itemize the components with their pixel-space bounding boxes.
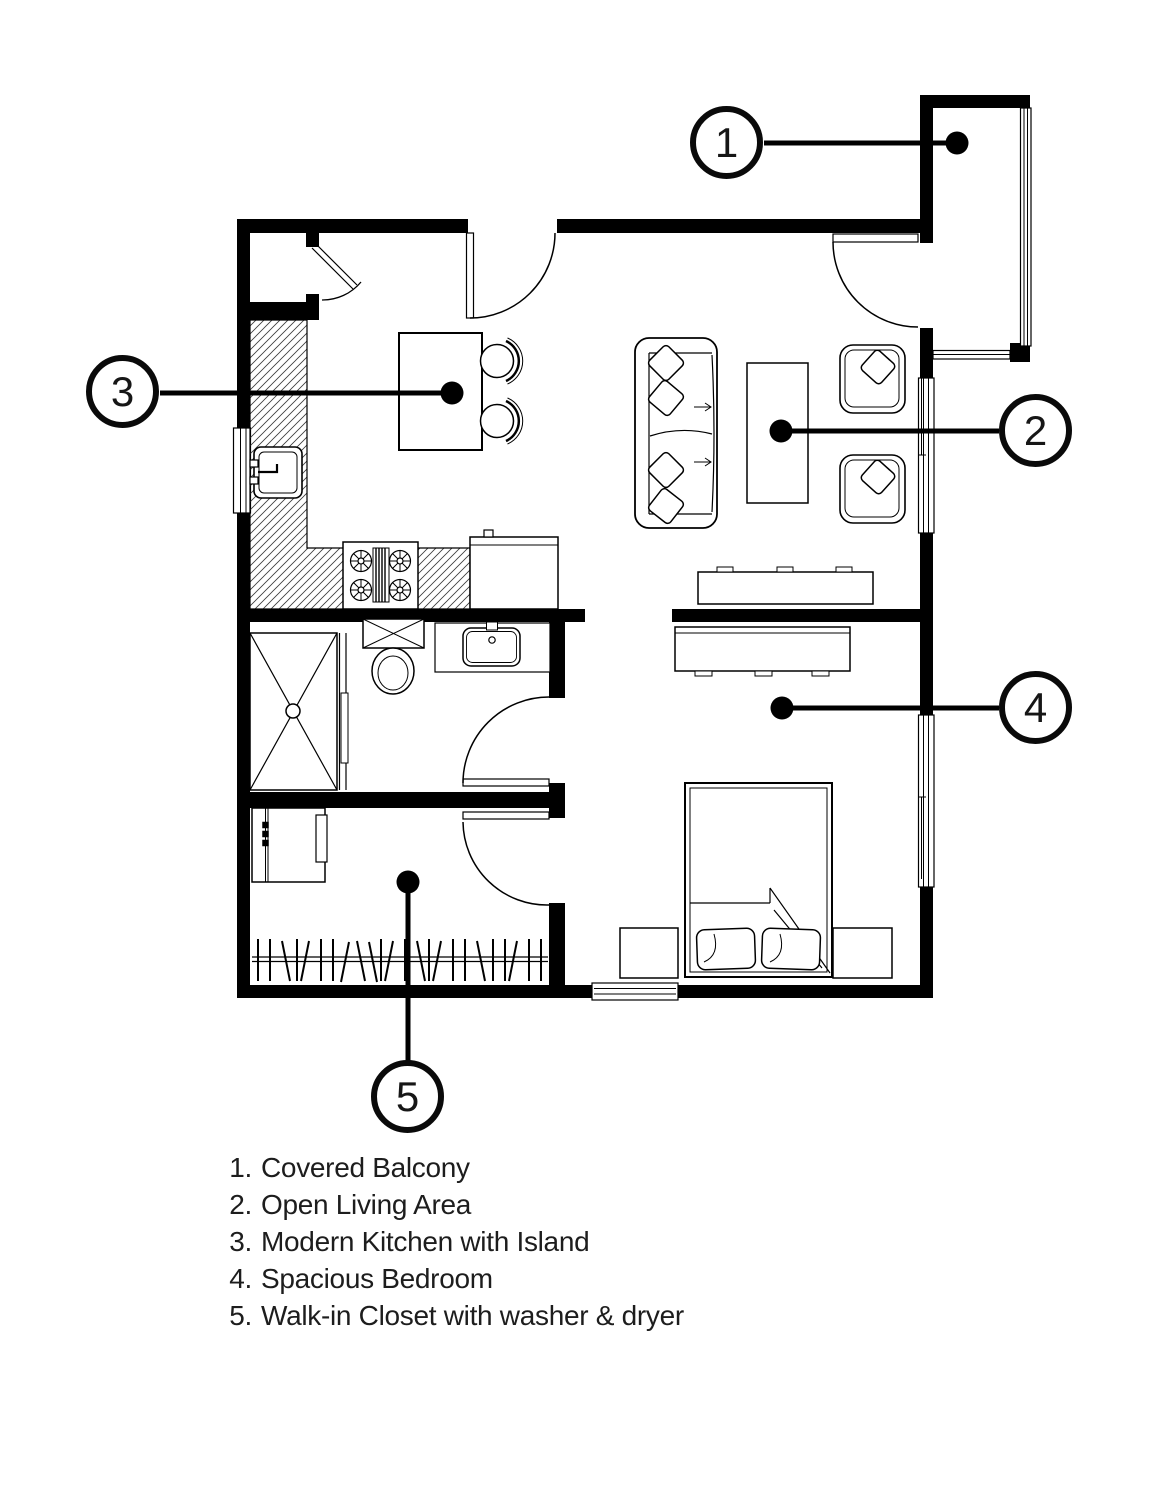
kitchen-window: [234, 428, 251, 513]
entry-door: [467, 233, 556, 318]
legend-item-label: Walk-in Closet with washer & dryer: [261, 1300, 684, 1332]
callout-number: 5: [396, 1076, 419, 1118]
living-room: [635, 338, 905, 604]
callout-bubble-4: 4: [999, 671, 1072, 744]
bathroom-door: [463, 697, 549, 786]
callout-bubble-3: 3: [86, 355, 159, 428]
closet-door: [463, 812, 549, 905]
bedroom-bottom-window: [592, 983, 678, 1000]
balcony-glass-right: [1021, 108, 1032, 346]
bedroom-divider-seg1: [549, 622, 565, 698]
dresser-icon: [675, 627, 850, 676]
top-wall-left: [237, 219, 468, 233]
living-bedroom-wall: [672, 609, 920, 622]
legend-item-label: Spacious Bedroom: [261, 1263, 493, 1295]
right-wall-seg3: [920, 887, 933, 998]
sofa-icon: [635, 338, 717, 528]
legend-item: 4. Spacious Bedroom: [216, 1260, 684, 1297]
legend-item-label: Covered Balcony: [261, 1152, 470, 1184]
stove-icon: [343, 542, 418, 609]
kitchen: [250, 320, 558, 609]
legend-item-number: 5.: [216, 1300, 252, 1332]
entry-closet-stub-bottom: [306, 294, 319, 320]
legend-item-number: 4.: [216, 1263, 252, 1295]
closet-rail-icon: [252, 939, 548, 982]
left-wall-lower: [237, 513, 250, 998]
toilet-icon: [363, 619, 424, 694]
callout-leader-1: [764, 132, 969, 155]
bed-icon: [685, 783, 832, 977]
callout-number: 1: [715, 122, 738, 164]
bathroom-vanity-icon: [435, 622, 550, 672]
callout-bubble-5: 5: [371, 1060, 444, 1133]
callout-bubble-2: 2: [999, 394, 1072, 467]
kitchen-sink-icon: [250, 447, 302, 498]
legend-item-number: 3.: [216, 1226, 252, 1258]
balcony-glass-bottom: [933, 351, 1010, 360]
right-wall-seg2: [920, 533, 933, 715]
callout-bubble-1: 1: [690, 106, 763, 179]
refrigerator-icon: [470, 530, 558, 609]
right-wall-seg1: [920, 328, 933, 378]
callout-number: 4: [1024, 687, 1047, 729]
bathroom: [250, 619, 550, 790]
bedroom: [620, 627, 892, 978]
bathroom-closet-wall: [237, 792, 565, 808]
bedroom-divider-seg3: [549, 903, 565, 985]
walk-in-closet: [252, 808, 548, 982]
tv-console-icon: [698, 567, 873, 604]
legend-item-label: Open Living Area: [261, 1189, 471, 1221]
legend-item-label: Modern Kitchen with Island: [261, 1226, 589, 1258]
bottom-wall-right: [678, 985, 933, 998]
balcony-door: [833, 234, 918, 327]
nightstand-icon: [620, 928, 678, 978]
bottom-wall-left: [237, 985, 592, 998]
balcony-left-wall: [920, 95, 933, 243]
top-wall-right: [557, 219, 920, 233]
callout-leader-4: [771, 697, 1000, 720]
nightstand-icon: [833, 928, 892, 978]
entry-closet-door: [312, 244, 361, 300]
legend-item: 2. Open Living Area: [216, 1186, 684, 1223]
legend-item: 3. Modern Kitchen with Island: [216, 1223, 684, 1260]
callout-number: 3: [111, 371, 134, 413]
callout-number: 2: [1024, 410, 1047, 452]
legend-item: 1. Covered Balcony: [216, 1149, 684, 1186]
armchair-icon: [840, 455, 905, 523]
floor-plan-page: 1 2 3 4 5 1. Covered Balcony 2. Open Liv…: [0, 0, 1159, 1500]
left-wall-upper: [237, 219, 250, 428]
washer-dryer-icon: [252, 808, 327, 882]
shower-icon: [250, 633, 348, 790]
legend-item-number: 2.: [216, 1189, 252, 1221]
legend: 1. Covered Balcony 2. Open Living Area 3…: [216, 1149, 684, 1334]
legend-item-number: 1.: [216, 1152, 252, 1184]
callout-leader-5: [397, 871, 420, 1062]
balcony-top-wall: [920, 95, 1030, 108]
living-window: [919, 378, 935, 533]
armchair-icon: [840, 345, 905, 413]
legend-item: 5. Walk-in Closet with washer & dryer: [216, 1297, 684, 1334]
bedroom-window: [919, 715, 935, 887]
